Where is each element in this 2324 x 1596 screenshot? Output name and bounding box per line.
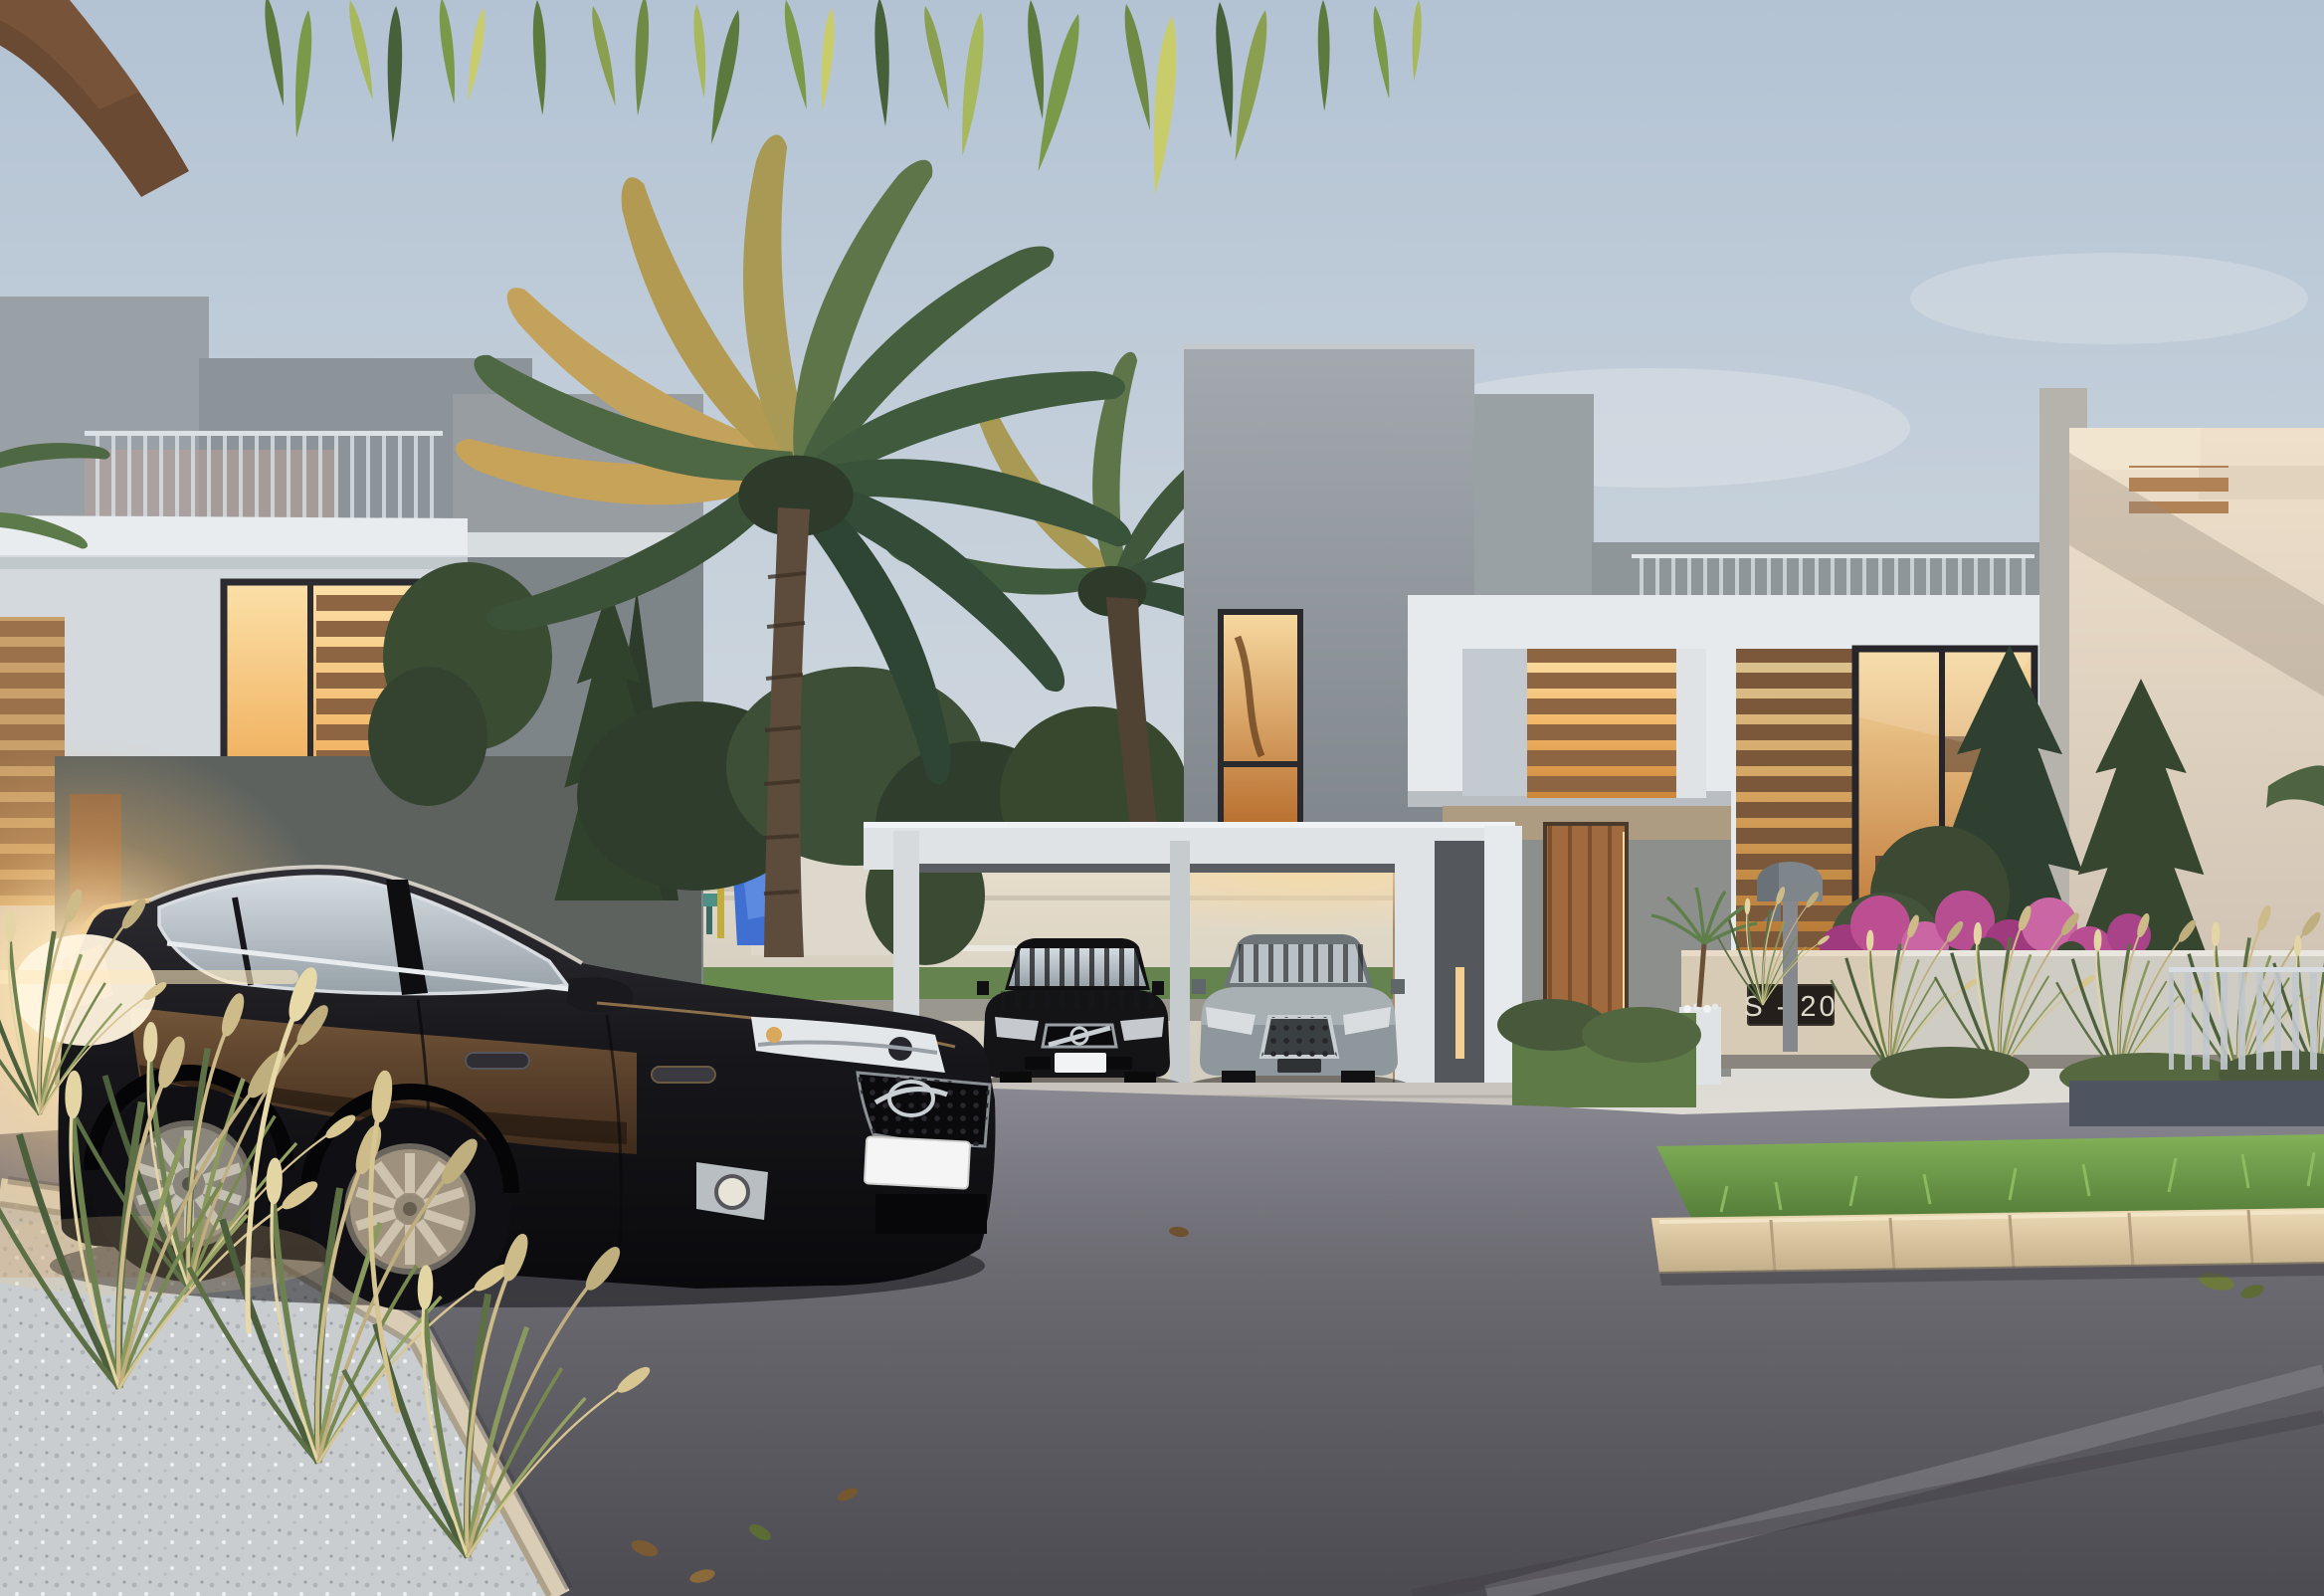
median-grass (1656, 1134, 2324, 1218)
bush (1582, 1007, 1701, 1063)
license-plate (1055, 1053, 1106, 1073)
slot-window-lit (1221, 612, 1300, 826)
door-handle (652, 1067, 715, 1083)
louver-window-a (1527, 649, 1676, 798)
door-handle (466, 1053, 529, 1069)
cloud (1910, 253, 2308, 344)
carport-pillar (1395, 841, 1435, 1090)
render-canvas: S - 20 (0, 0, 2324, 1596)
villa-street-render: S - 20 (0, 0, 2324, 1596)
median-strip (1651, 1134, 2324, 1286)
front-grille (858, 1073, 990, 1146)
license-plate (1277, 1059, 1321, 1073)
carport-pillar (1170, 841, 1190, 1086)
front-license-plate (865, 1136, 970, 1188)
roof-railing (85, 434, 443, 521)
picket-fence (2169, 967, 2324, 1070)
